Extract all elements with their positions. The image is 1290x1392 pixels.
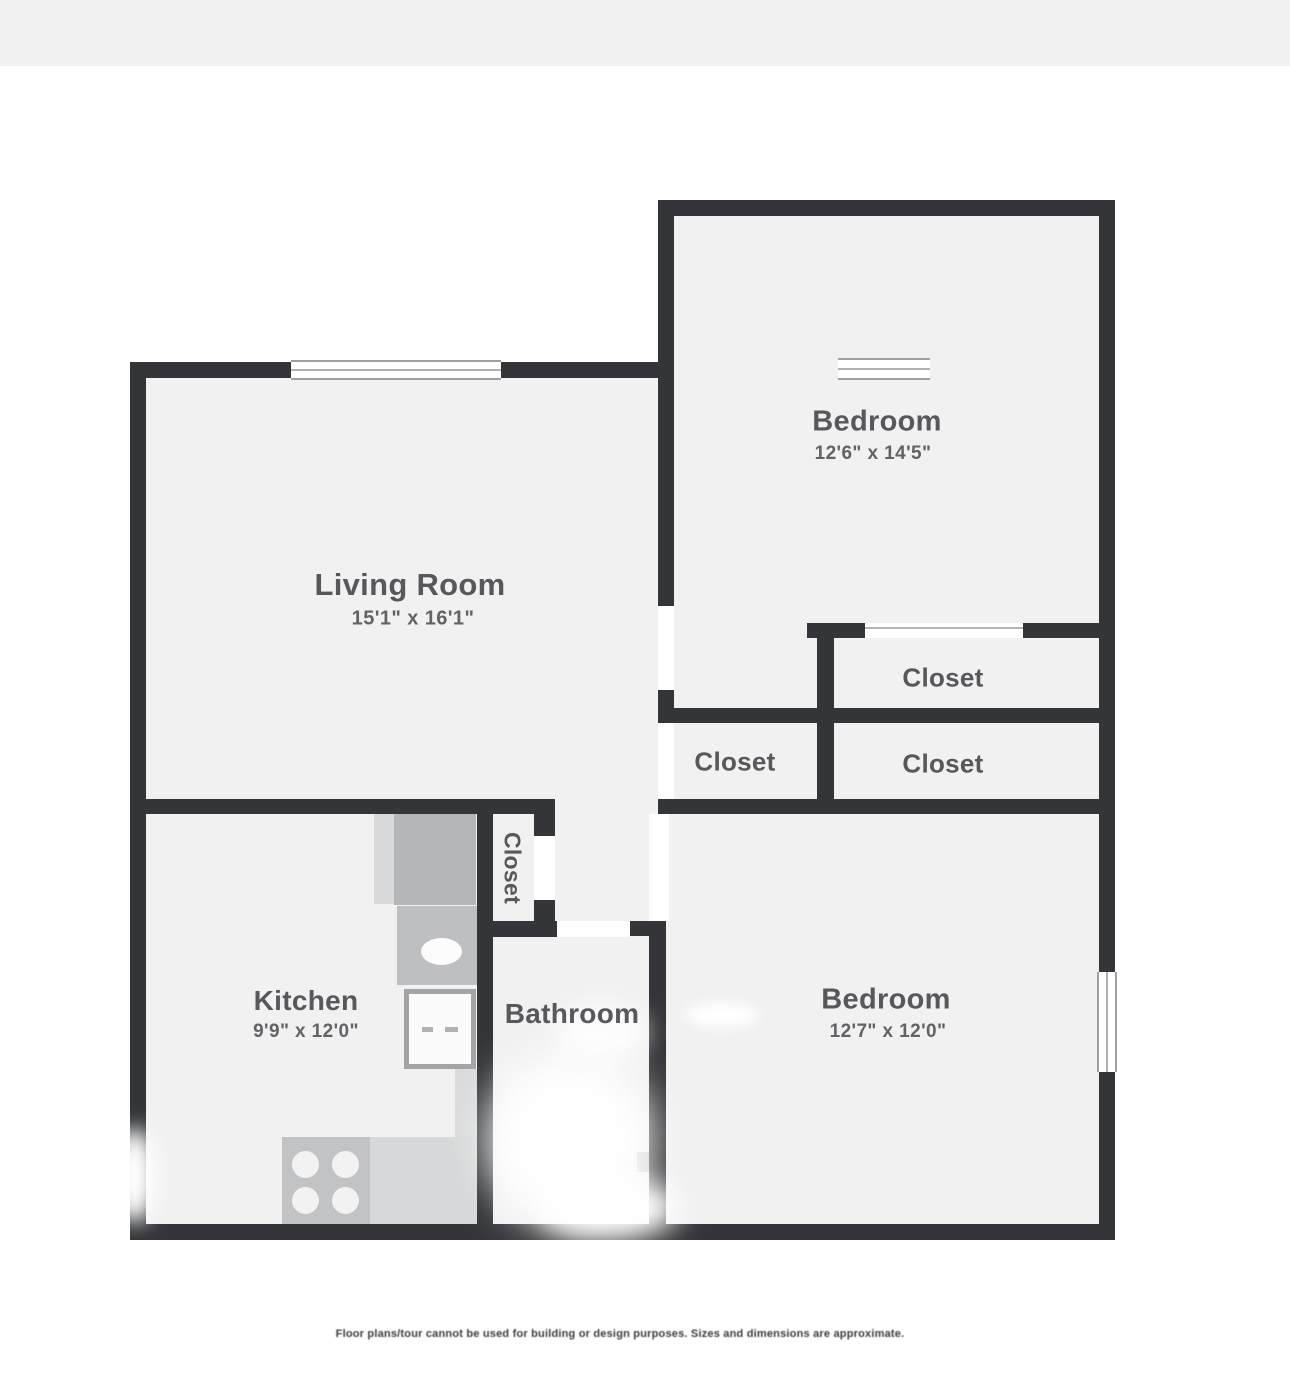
closet-sliding-opening (865, 623, 1023, 638)
bathroom-label: Bathroom (505, 998, 640, 1030)
bedroom2-label: Bedroom (821, 984, 950, 1017)
dishwasher (404, 989, 476, 1069)
wall (817, 623, 834, 723)
bedroom1-label: Bedroom (812, 406, 941, 439)
window (1097, 972, 1117, 1072)
bedroom2-door-opening (649, 814, 669, 921)
floorplan-page: Living Room 15'1" x 16'1" Bedroom 12'6" … (0, 0, 1290, 1392)
wall (658, 200, 674, 606)
artifact-blob (686, 1003, 758, 1027)
wall (658, 708, 1115, 723)
closet-left-opening (658, 723, 674, 799)
top-band (0, 0, 1290, 66)
disclaimer-text: Floor plans/tour cannot be used for buil… (285, 1328, 955, 1340)
bedroom2-dimensions: 12'7" x 12'0" (830, 1021, 947, 1043)
kitchen-counter (374, 812, 394, 904)
living-room-label: Living Room (314, 567, 505, 603)
closet-hall-label: Closet (499, 832, 526, 904)
bedroom1-dimensions: 12'6" x 14'5" (815, 443, 932, 465)
door-jamb (534, 900, 555, 937)
closet-left-label: Closet (694, 747, 775, 778)
window (291, 360, 501, 380)
living-room-dimensions: 15'1" x 16'1" (352, 608, 475, 631)
refrigerator (394, 812, 476, 905)
artifact-blob (112, 1128, 157, 1223)
closet-top-label: Closet (902, 663, 983, 694)
kitchen-counter (370, 1137, 477, 1225)
kitchen-dimensions: 9'9" x 12'0" (253, 1021, 359, 1043)
kitchen-sink (421, 938, 462, 965)
bathroom-door-opening (557, 921, 630, 937)
bedroom1-door-opening (658, 606, 674, 690)
hall-opening-floor (551, 799, 658, 814)
wall (477, 799, 493, 1240)
door-jamb (534, 799, 555, 836)
kitchen-counter (455, 1069, 477, 1138)
wall (658, 799, 1115, 814)
hall-closet-door-opening (534, 836, 555, 900)
stove (282, 1137, 370, 1225)
closet-right-label: Closet (902, 749, 983, 780)
artifact-blob (540, 1175, 680, 1240)
wall (817, 723, 834, 814)
kitchen-label: Kitchen (254, 985, 359, 1017)
window (838, 358, 930, 380)
wall (658, 200, 1115, 216)
